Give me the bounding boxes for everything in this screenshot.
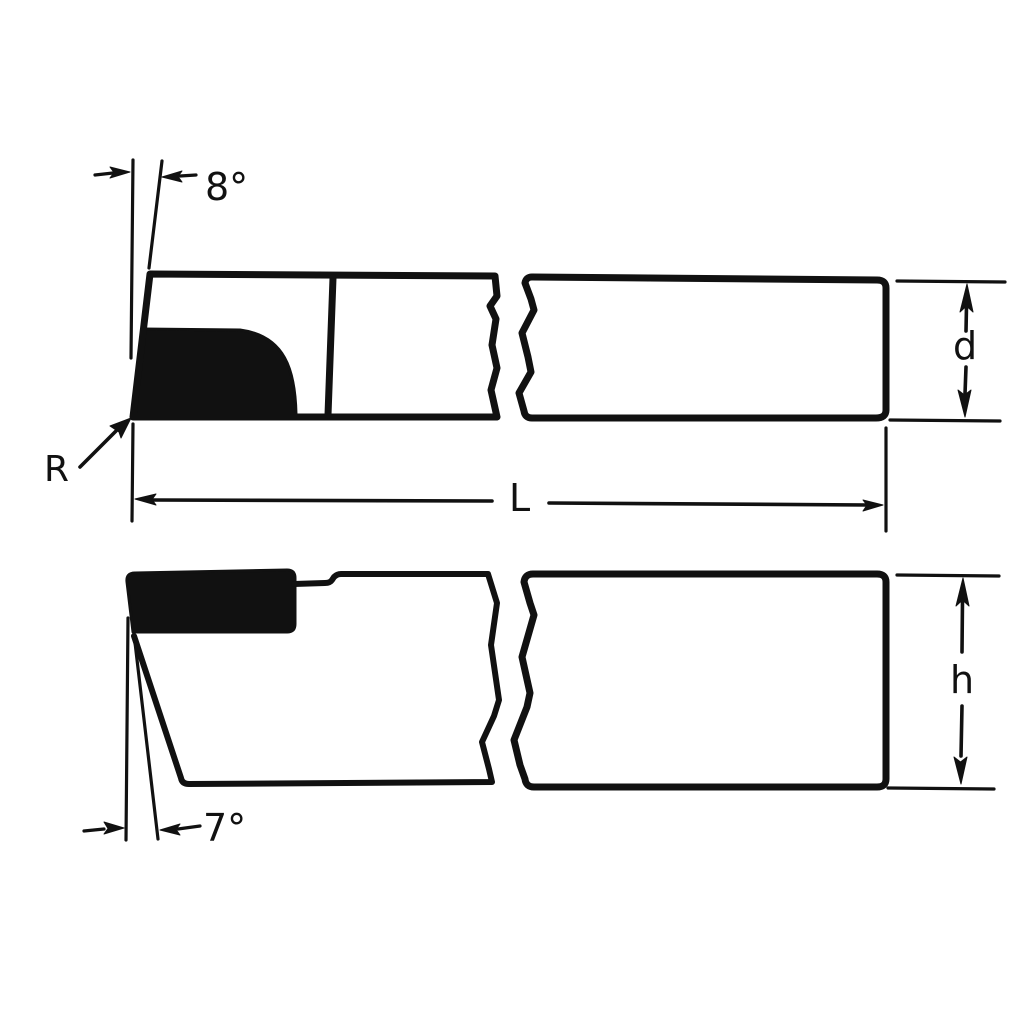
- nose-radius-arrow-shaft: [80, 431, 116, 467]
- diameter-bottom-extension-line: [890, 420, 1000, 421]
- drawing-sheet: 8° R L d: [0, 0, 1024, 1024]
- tool-bit-drawing: 8° R L d: [0, 0, 1024, 1024]
- length-label: L: [509, 476, 530, 520]
- height-dimension-line-lower: [961, 706, 962, 756]
- length-left-extension-line: [132, 424, 133, 521]
- nose-radius-label: R: [44, 449, 69, 490]
- length-dimension-line-right: [549, 503, 868, 505]
- nose-radius-annotation: R: [44, 418, 131, 490]
- length-dimension-line-left: [153, 500, 492, 501]
- top-view-body-right-outline: [519, 277, 886, 418]
- height-dimension: h: [888, 575, 999, 789]
- diameter-label: d: [953, 324, 977, 368]
- top-view-insert-boundary-line: [328, 278, 333, 415]
- diameter-dimension: d: [890, 281, 1005, 421]
- clearance-angle-left-arrowhead-icon: [104, 822, 124, 834]
- top-view-carbide-insert: [134, 329, 296, 415]
- rake-angle-vertical-reference-line: [131, 160, 133, 358]
- diameter-dimension-line-lower: [965, 367, 966, 394]
- side-view: [127, 570, 886, 787]
- rake-angle-left-arrow-shaft: [95, 173, 113, 175]
- clearance-angle-left-arrow-shaft: [84, 829, 104, 831]
- side-view-body-right-outline: [514, 574, 886, 787]
- clearance-angle-right-arrow-shaft: [178, 826, 200, 829]
- height-top-extension-line: [897, 575, 999, 576]
- side-view-carbide-insert: [127, 570, 295, 632]
- rake-angle-label: 8°: [205, 165, 248, 209]
- rake-angle-slanted-reference-line: [149, 161, 162, 268]
- rake-angle-right-arrow-shaft: [180, 175, 196, 176]
- height-down-arrowhead-icon: [954, 757, 967, 784]
- height-label: h: [950, 658, 974, 702]
- height-dimension-line-upper: [962, 600, 963, 652]
- diameter-top-extension-line: [897, 281, 1005, 282]
- length-dimension: L: [132, 424, 886, 531]
- clearance-angle-vertical-reference-line: [126, 618, 128, 840]
- height-bottom-extension-line: [888, 788, 994, 789]
- clearance-angle-label: 7°: [203, 806, 246, 850]
- top-view: [133, 274, 886, 418]
